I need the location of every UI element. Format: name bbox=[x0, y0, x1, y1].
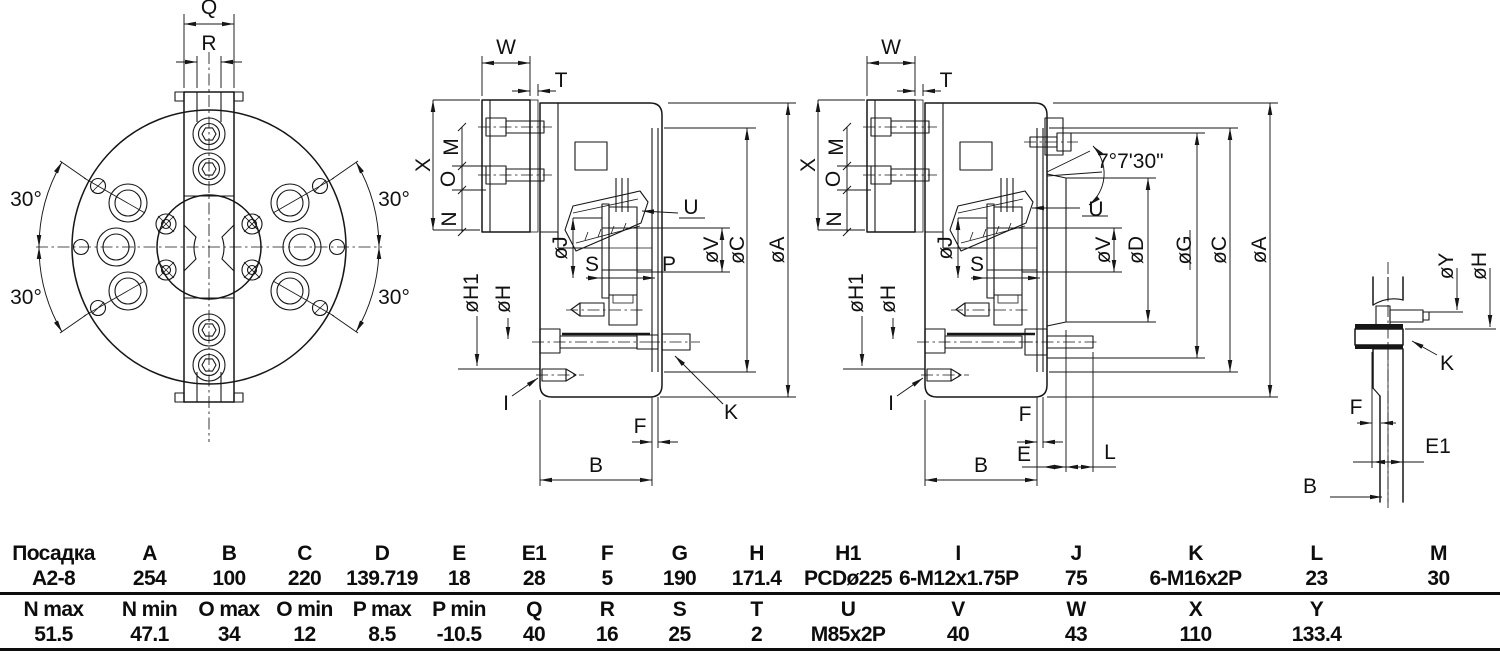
dim-label-f: F bbox=[1350, 396, 1363, 419]
table-cell: 12 bbox=[266, 622, 343, 647]
dim-label-h: øH bbox=[877, 285, 900, 313]
table-cell: H1 bbox=[797, 541, 899, 566]
dim-label-k: K bbox=[724, 401, 738, 424]
table-cell: I bbox=[899, 541, 1017, 566]
table-cell: 43 bbox=[1017, 622, 1135, 647]
table-cell: 40 bbox=[899, 622, 1017, 647]
dim-label-y: øY bbox=[1435, 253, 1458, 280]
dim-label-p: P bbox=[662, 253, 676, 276]
table-cell: 220 bbox=[266, 566, 343, 591]
table-cell: V bbox=[899, 597, 1017, 622]
table-cell: U bbox=[797, 597, 899, 622]
table-divider bbox=[0, 592, 1500, 595]
angle-label-top-left: 30° bbox=[10, 188, 42, 211]
dim-label-s: S bbox=[585, 253, 599, 276]
table-cell: P min bbox=[421, 597, 497, 622]
table-cell: C bbox=[266, 541, 343, 566]
dim-label-i: I bbox=[503, 392, 509, 415]
table-cell: 51.5 bbox=[0, 622, 107, 647]
dim-label-f: F bbox=[1019, 403, 1032, 426]
dim-label-d: øD bbox=[1125, 236, 1148, 264]
table-cell: Q bbox=[497, 597, 571, 622]
angle-label-bottom-left: 30° bbox=[10, 286, 42, 309]
dim-label-e: E bbox=[1017, 443, 1031, 466]
dim-label-f: F bbox=[634, 415, 647, 438]
table-cell: L bbox=[1256, 541, 1377, 566]
table-cell: A bbox=[107, 541, 192, 566]
dim-label-k: K bbox=[1440, 352, 1454, 375]
dim-label-u: U bbox=[683, 196, 698, 219]
table-cell: A2-8 bbox=[0, 566, 107, 591]
dim-label-w: W bbox=[496, 36, 516, 59]
table-cell bbox=[1377, 597, 1500, 622]
dim-label-r: R bbox=[201, 32, 216, 55]
table-cell: H bbox=[716, 541, 797, 566]
table-cell: 5 bbox=[571, 566, 643, 591]
dim-label-n: N bbox=[438, 211, 461, 226]
table-row-values-1: A2-8 254 100 220 139.719 18 28 5 190 171… bbox=[0, 566, 1500, 591]
dim-label-v: øV bbox=[1092, 237, 1115, 264]
table-cell: PCDø225 bbox=[797, 566, 899, 591]
table-cell: 25 bbox=[643, 622, 716, 647]
table-cell: B bbox=[192, 541, 266, 566]
table-cell: 2 bbox=[716, 622, 797, 647]
table-cell: -10.5 bbox=[421, 622, 497, 647]
dim-label-x: X bbox=[412, 158, 435, 172]
dim-label-b: B bbox=[1303, 475, 1317, 498]
dim-label-e1: E1 bbox=[1425, 435, 1451, 458]
chuck-technical-drawing: Q R 30° 30° 30° 30° W T X M O N øH1 øH ø… bbox=[0, 0, 1500, 656]
table-cell: P max bbox=[343, 597, 421, 622]
dim-label-c: øC bbox=[726, 236, 749, 264]
dimension-table: Посадка A B C D E E1 F G H H1 I J K L M … bbox=[0, 528, 1500, 653]
dim-label-v: øV bbox=[700, 237, 723, 264]
angle-label-bottom-right: 30° bbox=[378, 286, 410, 309]
table-row-headers-2: N max N min O max O min P max P min Q R … bbox=[0, 597, 1500, 622]
table-cell: 75 bbox=[1017, 566, 1135, 591]
dim-label-w: W bbox=[881, 36, 901, 59]
table-cell: G bbox=[643, 541, 716, 566]
table-cell: W bbox=[1017, 597, 1135, 622]
table-cell: F bbox=[571, 541, 643, 566]
dim-label-h1: øH1 bbox=[845, 273, 868, 313]
table-cell: 47.1 bbox=[107, 622, 192, 647]
table-cell: 100 bbox=[192, 566, 266, 591]
table-cell: E bbox=[421, 541, 497, 566]
table-cell: X bbox=[1135, 597, 1256, 622]
table-cell: K bbox=[1135, 541, 1256, 566]
angle-label: 7°7'30" bbox=[1097, 150, 1164, 173]
table-cell: O min bbox=[266, 597, 343, 622]
table-cell: Y bbox=[1256, 597, 1377, 622]
table-cell: S bbox=[643, 597, 716, 622]
table-cell: 190 bbox=[643, 566, 716, 591]
angle-label-top-right: 30° bbox=[378, 188, 410, 211]
table-cell: 254 bbox=[107, 566, 192, 591]
table-cell bbox=[1377, 622, 1500, 647]
dim-label-b: B bbox=[589, 454, 603, 477]
dim-label-q: Q bbox=[201, 0, 217, 19]
table-cell: 171.4 bbox=[716, 566, 797, 591]
dim-label-j: øJ bbox=[934, 236, 957, 259]
table-cell: 18 bbox=[421, 566, 497, 591]
dim-label-o: O bbox=[437, 171, 460, 187]
table-cell: 110 bbox=[1135, 622, 1256, 647]
dim-label-a: øA bbox=[1248, 237, 1271, 264]
table-cell: D bbox=[343, 541, 421, 566]
dim-label-a: øA bbox=[766, 237, 789, 264]
table-cell: 30 bbox=[1377, 566, 1500, 591]
table-cell: 139.719 bbox=[343, 566, 421, 591]
dim-label-o: O bbox=[822, 171, 845, 187]
table-cell: 23 bbox=[1256, 566, 1377, 591]
dim-label-n: N bbox=[823, 211, 846, 226]
table-cell: 28 bbox=[497, 566, 571, 591]
dim-label-t: T bbox=[555, 69, 568, 92]
table-cell: N min bbox=[107, 597, 192, 622]
table-cell: 40 bbox=[497, 622, 571, 647]
table-cell: M85x2P bbox=[797, 622, 899, 647]
drawing-canvas: Q R 30° 30° 30° 30° W T X M O N øH1 øH ø… bbox=[0, 0, 1500, 528]
table-cell: N max bbox=[0, 597, 107, 622]
dim-label-l: L bbox=[1104, 441, 1116, 464]
dim-label-m: M bbox=[825, 138, 848, 156]
dim-label-h: øH bbox=[1468, 252, 1491, 280]
dim-label-b: B bbox=[974, 454, 988, 477]
dim-label-s: S bbox=[970, 253, 984, 276]
dim-label-c: øC bbox=[1208, 236, 1231, 264]
dim-label-x: X bbox=[797, 158, 820, 172]
table-cell: 6-M16x2P bbox=[1135, 566, 1256, 591]
table-cell: 16 bbox=[571, 622, 643, 647]
dim-label-h1: øH1 bbox=[460, 273, 483, 313]
table-cell: 34 bbox=[192, 622, 266, 647]
table-cell: E1 bbox=[497, 541, 571, 566]
dim-label-h: øH bbox=[492, 285, 515, 313]
dim-label-g: øG bbox=[1173, 235, 1196, 264]
table-cell: 6-M12x1.75P bbox=[899, 566, 1017, 591]
dim-label-j: øJ bbox=[549, 236, 572, 259]
dim-label-i: I bbox=[888, 392, 894, 415]
table-cell: 8.5 bbox=[343, 622, 421, 647]
table-cell: Посадка bbox=[0, 541, 107, 566]
table-cell: J bbox=[1017, 541, 1135, 566]
table-bottom-rule bbox=[0, 648, 1500, 651]
table-row-headers-1: Посадка A B C D E E1 F G H H1 I J K L M bbox=[0, 541, 1500, 566]
table-cell: 133.4 bbox=[1256, 622, 1377, 647]
dim-label-u: U bbox=[1088, 198, 1103, 221]
dim-label-m: M bbox=[440, 138, 463, 156]
table-cell: R bbox=[571, 597, 643, 622]
table-cell: T bbox=[716, 597, 797, 622]
table-cell: M bbox=[1377, 541, 1500, 566]
table-cell: O max bbox=[192, 597, 266, 622]
table-row-values-2: 51.5 47.1 34 12 8.5 -10.5 40 16 25 2 M85… bbox=[0, 622, 1500, 647]
dim-label-t: T bbox=[940, 69, 953, 92]
